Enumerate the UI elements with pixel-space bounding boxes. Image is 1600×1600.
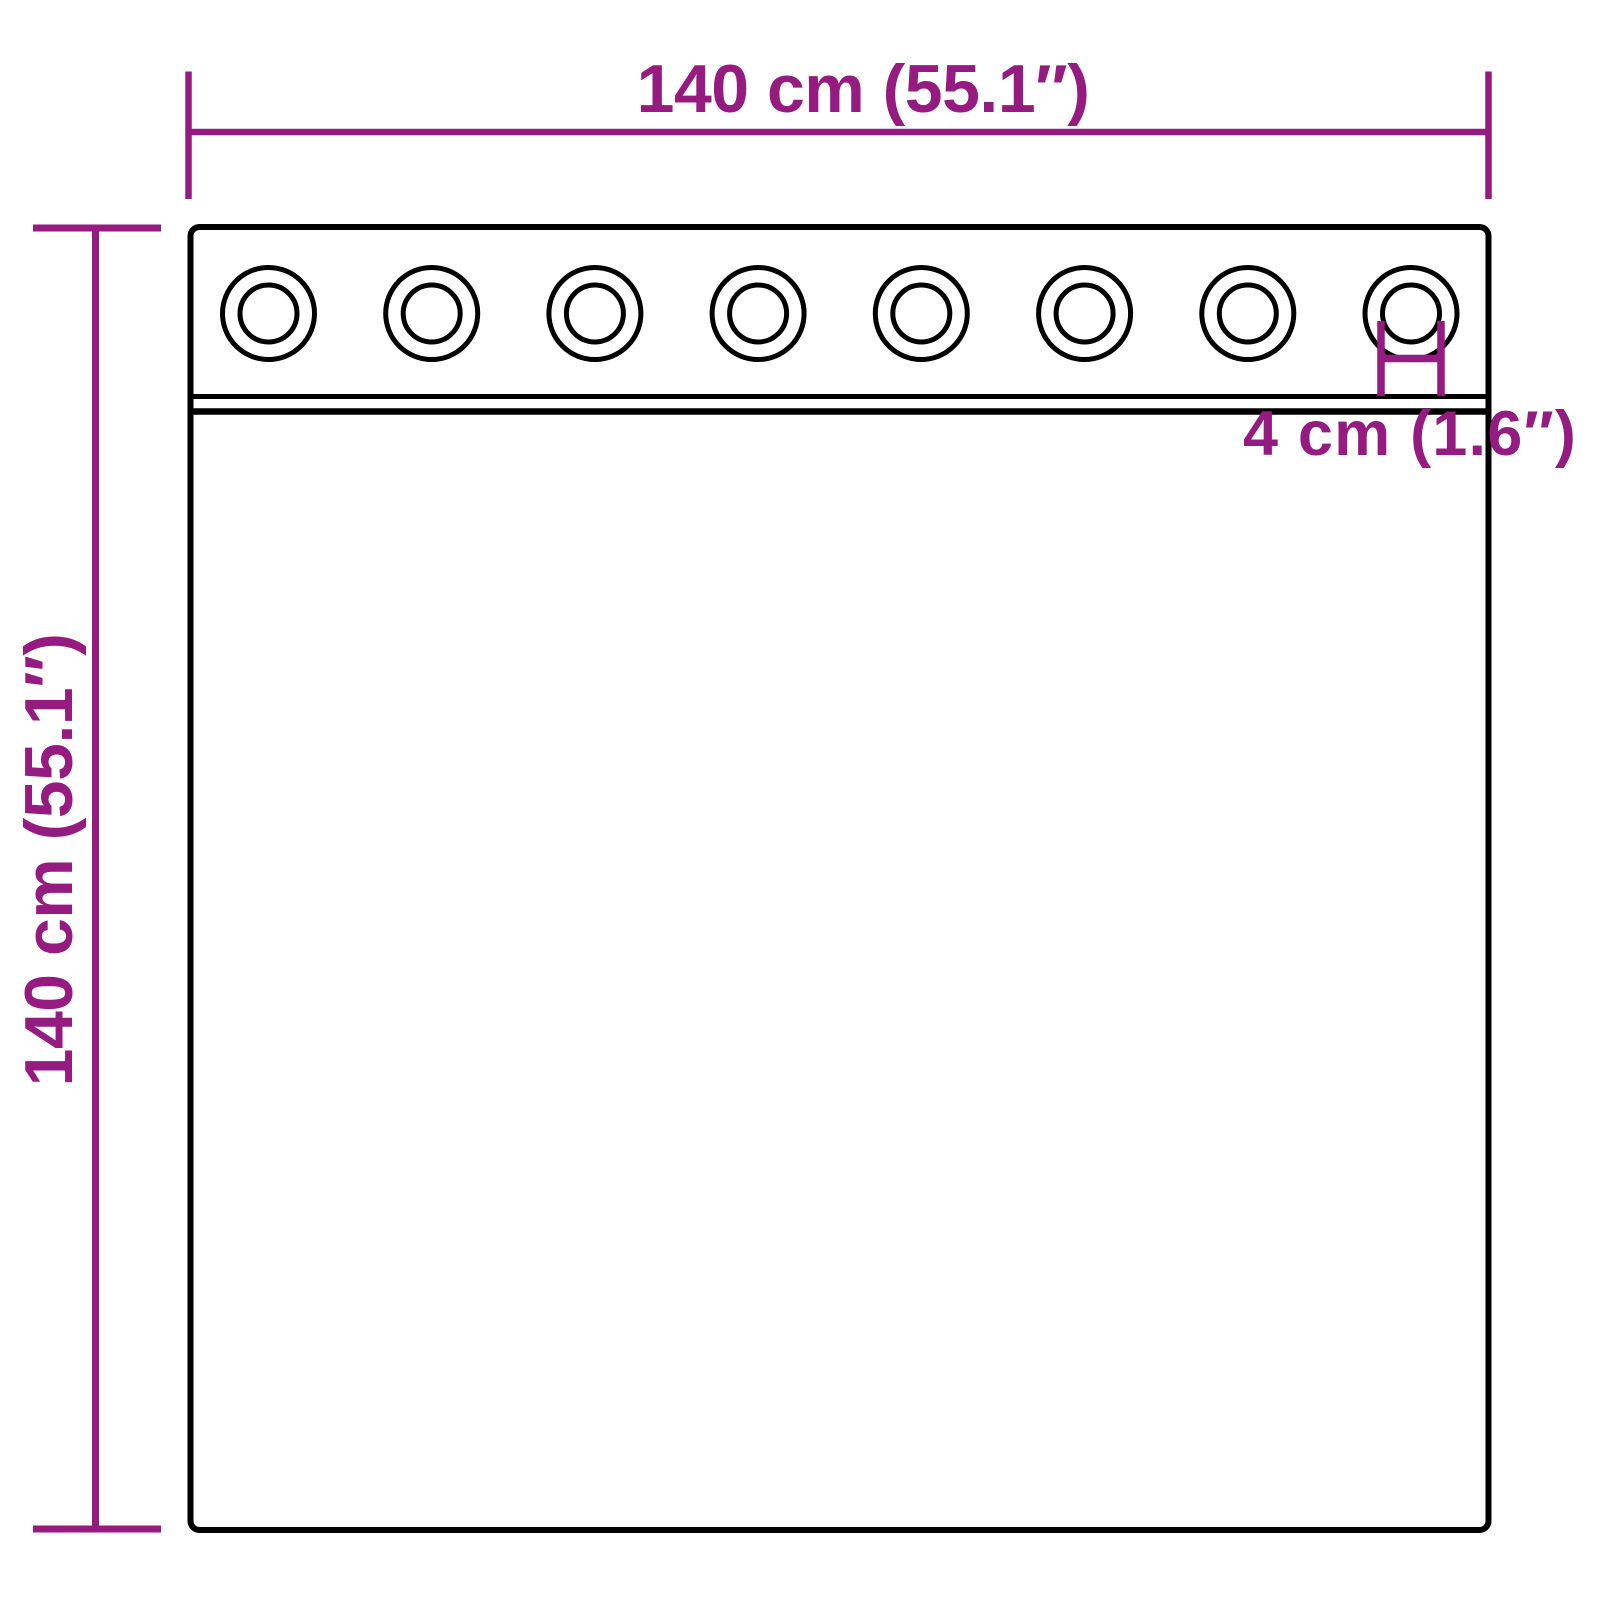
svg-text:140 cm (55.1″): 140 cm (55.1″) <box>11 634 87 1087</box>
svg-text:4 cm (1.6″): 4 cm (1.6″) <box>1243 399 1577 469</box>
svg-text:140 cm (55.1″): 140 cm (55.1″) <box>637 51 1090 127</box>
